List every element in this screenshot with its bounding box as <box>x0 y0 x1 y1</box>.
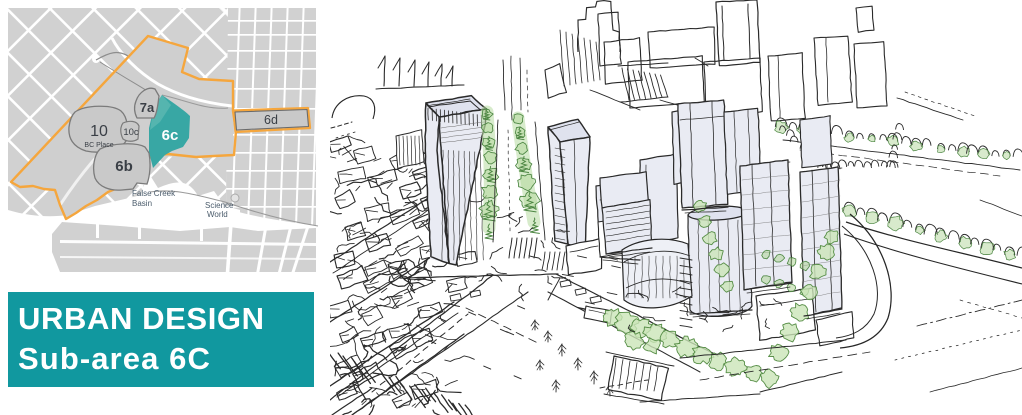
svg-text:False Creek: False Creek <box>132 189 176 198</box>
svg-text:10c: 10c <box>123 127 139 138</box>
svg-text:World: World <box>207 210 228 219</box>
svg-text:Science: Science <box>205 201 234 210</box>
svg-text:10: 10 <box>90 123 108 140</box>
svg-text:6d: 6d <box>264 113 278 127</box>
svg-text:Basin: Basin <box>132 199 152 208</box>
svg-text:6c: 6c <box>162 127 179 144</box>
svg-text:7a: 7a <box>140 100 155 115</box>
svg-text:6b: 6b <box>115 158 133 175</box>
svg-text:BC Place: BC Place <box>84 142 113 149</box>
